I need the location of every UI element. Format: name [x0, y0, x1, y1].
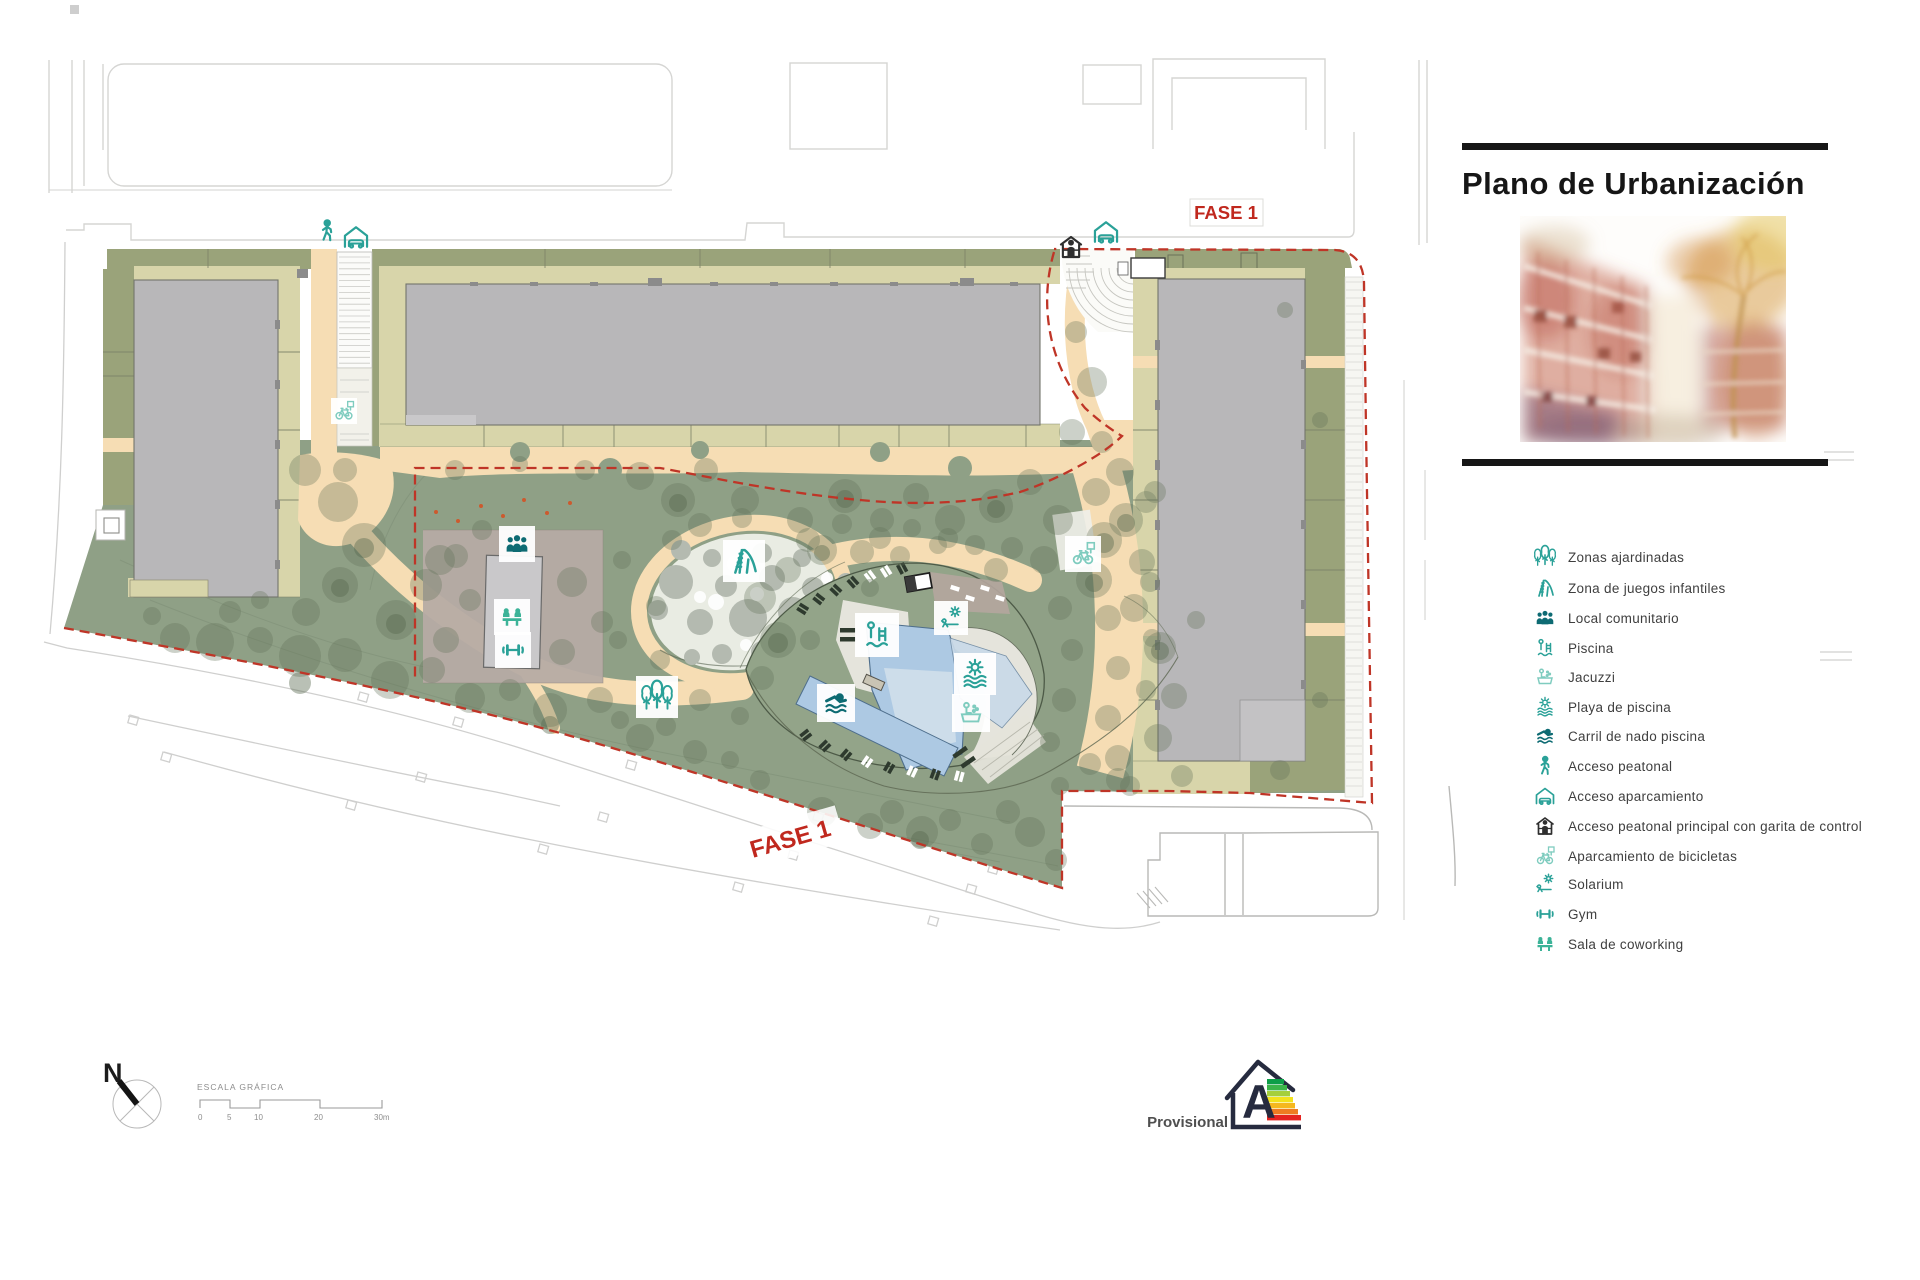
svg-text:Acceso peatonal: Acceso peatonal [1568, 759, 1672, 774]
svg-text:Provisional: Provisional [1147, 1114, 1228, 1131]
svg-text:Local comunitario: Local comunitario [1568, 611, 1679, 626]
svg-text:30m: 30m [374, 1113, 390, 1122]
svg-text:Zonas ajardinadas: Zonas ajardinadas [1568, 550, 1684, 565]
svg-text:ESCALA GRÁFICA: ESCALA GRÁFICA [197, 1082, 284, 1092]
svg-text:Playa de piscina: Playa de piscina [1568, 700, 1671, 715]
svg-text:Sala de coworking: Sala de coworking [1568, 937, 1683, 952]
svg-text:20: 20 [314, 1113, 323, 1122]
svg-text:Gym: Gym [1568, 907, 1597, 922]
svg-text:Plano de Urbanización: Plano de Urbanización [1462, 166, 1805, 201]
svg-text:Acceso aparcamiento: Acceso aparcamiento [1568, 789, 1704, 804]
svg-text:Zona de juegos infantiles: Zona de juegos infantiles [1568, 581, 1726, 596]
svg-text:10: 10 [254, 1113, 263, 1122]
svg-text:0: 0 [198, 1113, 203, 1122]
svg-text:A: A [1242, 1075, 1276, 1128]
svg-text:Solarium: Solarium [1568, 877, 1624, 892]
svg-text:Jacuzzi: Jacuzzi [1568, 670, 1615, 685]
svg-text:FASE 1: FASE 1 [1194, 202, 1258, 223]
svg-text:5: 5 [227, 1113, 232, 1122]
svg-text:Aparcamiento de bicicletas: Aparcamiento de bicicletas [1568, 849, 1737, 864]
svg-text:Carril de nado piscina: Carril de nado piscina [1568, 729, 1705, 744]
svg-text:Piscina: Piscina [1568, 641, 1614, 656]
svg-text:Acceso peatonal principal con: Acceso peatonal principal con garita de … [1568, 819, 1862, 834]
